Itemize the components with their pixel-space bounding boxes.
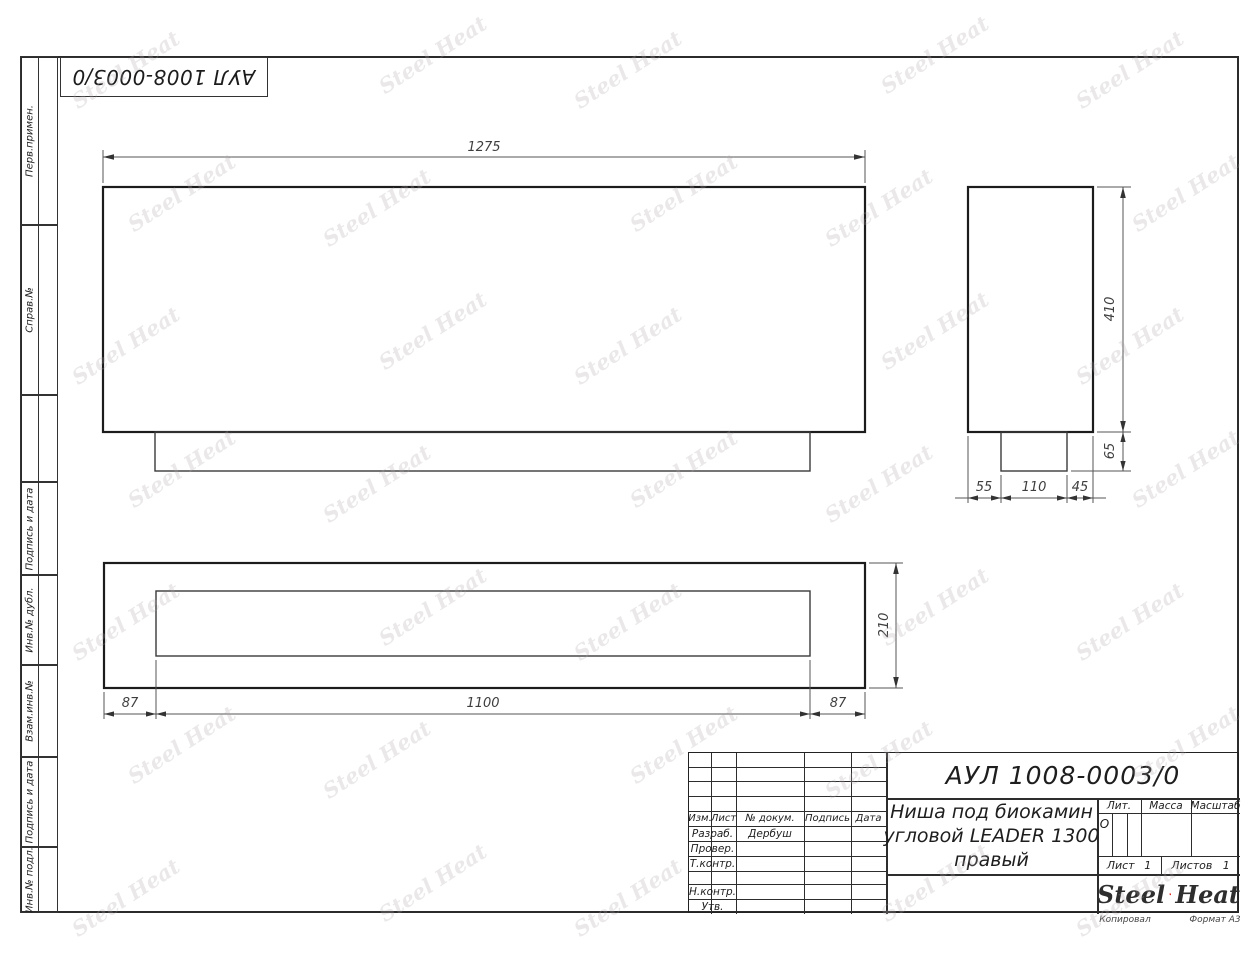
margin-label: Взам.инв.№ [25,680,36,742]
drawing-sheet: 1275 410 65 55 [0,0,1255,970]
sheets-value: 1 [1223,859,1230,872]
header-list: Лист [711,811,736,826]
margin-box-perv-primen: Перв.примен. [20,56,58,225]
margin-label: Инв.№ дубл. [25,587,36,652]
flame-icon [1169,881,1171,907]
margin-label: Перв.примен. [25,105,36,177]
masshtab-header: Масштаб [1191,798,1240,813]
title-block: АУЛ 1008-0003/0 Ниша под биокамин углово… [688,752,1239,913]
razrab-name: Дербуш [736,826,804,841]
sheets-cell: Листов 1 [1161,856,1240,874]
margin-box-inv-podl: Инв.№ подл. [20,847,58,913]
designation: АУЛ 1008-0003/0 [886,753,1240,798]
part-name-line-1: Ниша под биокамин [886,799,1097,824]
header-podpis: Подпись [804,811,851,826]
sheet-label: Лист [1107,859,1135,872]
part-name-line-3: правый [886,847,1097,872]
role-razrab: Разраб. [689,826,736,841]
lit-header: Лит. [1097,798,1141,813]
margin-box-podpis-data-2: Подпись и дата [20,757,58,847]
format-note: Формат А3 [1183,915,1247,925]
lit-value: О [1097,813,1112,835]
logo-word-heat: Heat [1175,880,1240,909]
part-name-line-2: угловой LEADER 1300 [886,823,1097,848]
margin-box-inv-dubl: Инв.№ дубл. [20,575,58,665]
margin-label: Подпись и дата [25,487,36,570]
margin-box-blank [20,395,58,482]
role-utv: Утв. [689,899,736,914]
sheets-label: Листов [1171,859,1212,872]
copied-note: Копировал [1093,915,1157,925]
margin-box-vzam-inv: Взам.инв.№ [20,665,58,757]
margin-label: Инв.№ подл. [25,847,36,913]
margin-label: Справ.№ [25,287,36,332]
corner-designation-stamp: АУЛ 1008-0003/0 [60,57,268,97]
massa-header: Масса [1141,798,1191,813]
role-tkontr: Т.контр. [689,856,736,871]
company-logo: Steel Heat [1097,874,1240,914]
logo-word-steel: Steel [1097,880,1165,909]
header-dokum: № докум. [736,811,804,826]
header-data: Дата [851,811,886,826]
role-nkontr: Н.контр. [689,884,736,899]
margin-box-sprav-no: Справ.№ [20,225,58,395]
margin-label: Подпись и дата [25,761,36,844]
sheet-cell: Лист 1 [1097,856,1161,874]
header-izm: Изм. [689,811,711,826]
corner-designation-text: АУЛ 1008-0003/0 [72,65,255,89]
margin-box-podpis-data-1: Подпись и дата [20,482,58,575]
role-prover: Провер. [689,841,736,856]
sheet-value: 1 [1144,859,1151,872]
